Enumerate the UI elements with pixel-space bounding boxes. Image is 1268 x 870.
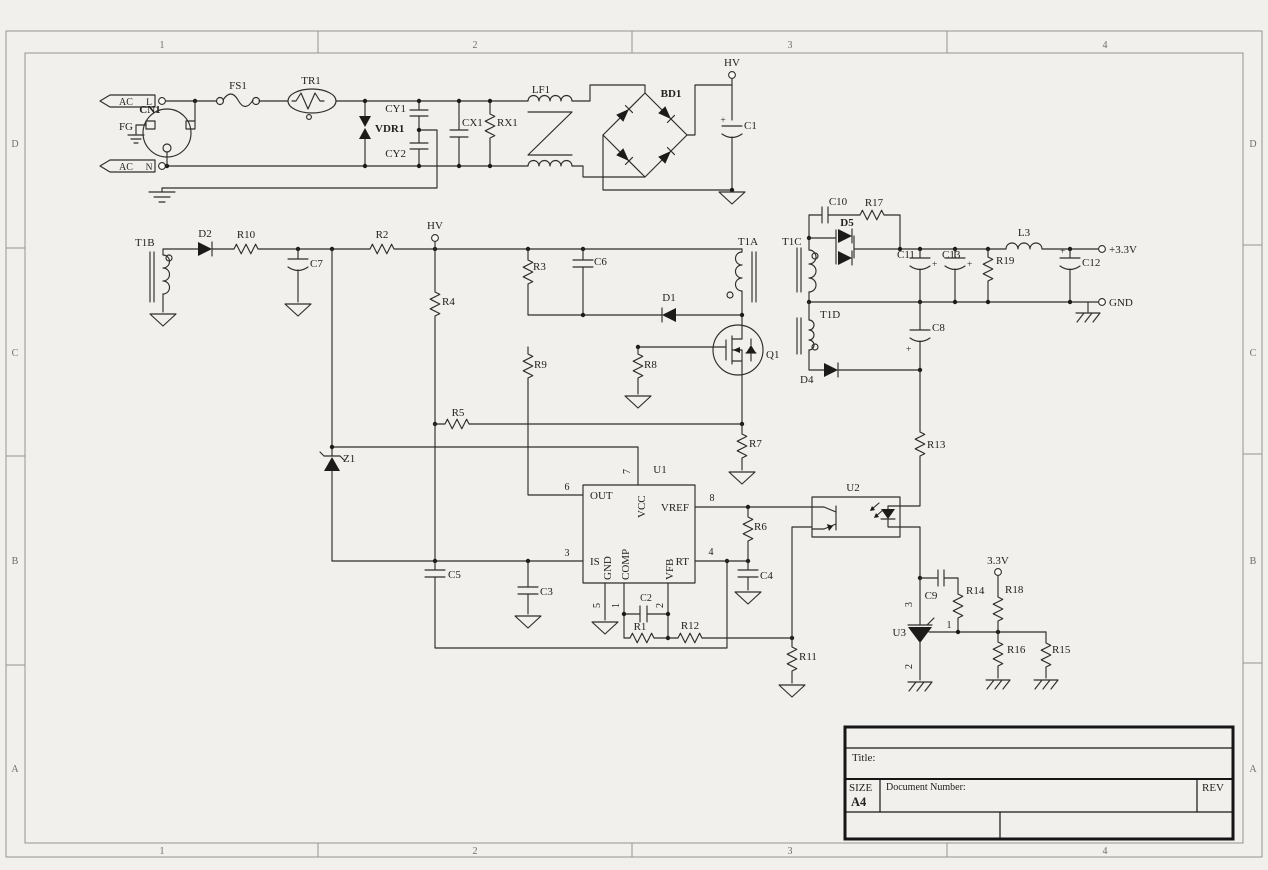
resistor-r12: R12	[668, 620, 794, 643]
fs1-label: FS1	[229, 80, 247, 92]
hv-top-label: HV	[724, 57, 740, 69]
d1-label: D1	[662, 292, 675, 304]
hv-mid-label: HV	[427, 220, 443, 232]
u1-pin-vfb-label: VFB	[664, 559, 676, 580]
c8-label: C8	[932, 322, 945, 334]
u3-pin3-number: 3	[904, 602, 915, 607]
u1-pin2-number: 2	[655, 603, 666, 608]
ac-line-flag-label: AC	[119, 97, 133, 108]
capacitor-c12: + C12	[1060, 247, 1100, 302]
resistor-r19: R19	[983, 249, 1015, 302]
u1-pin1-number: 1	[611, 603, 622, 608]
r19-label: R19	[996, 255, 1015, 267]
u1-pin-rt-label: RT	[676, 556, 690, 568]
y-capacitors: CY1 CY2	[149, 99, 437, 202]
capacitor-c5: C5	[425, 559, 729, 648]
zone-row-d-left: D	[11, 139, 18, 150]
t1d-label: T1D	[820, 309, 840, 321]
u1-label: U1	[653, 464, 666, 476]
resistor-r4: R4	[430, 249, 455, 424]
resistor-r5: R5	[433, 407, 744, 429]
resistor-r7: R7	[729, 424, 762, 484]
fg-label: FG	[119, 121, 133, 133]
r17-label: R17	[865, 197, 884, 209]
mosfet-q1: Q1	[638, 325, 779, 424]
r15-label: R15	[1052, 644, 1071, 656]
c4-label: C4	[760, 570, 773, 582]
lf1-label: LF1	[532, 84, 550, 96]
resistor-r16: R16	[986, 632, 1026, 689]
resistor-r3: R3	[523, 249, 546, 315]
c11-label: C11	[897, 249, 915, 261]
t1a-label: T1A	[738, 236, 758, 248]
inductor-l3: L3	[1006, 227, 1042, 249]
optocoupler-section: U2	[812, 482, 900, 537]
r9-label: R9	[534, 359, 547, 371]
fuse-fs1: FS1	[217, 80, 289, 107]
zone-col-1-top: 1	[160, 40, 165, 51]
common-mode-choke-lf1: LF1	[528, 84, 572, 166]
resistor-rx1: RX1	[485, 99, 518, 168]
c12-polarity: +	[1060, 247, 1065, 257]
signal-ground-icon	[908, 682, 932, 691]
r10-label: R10	[237, 229, 256, 241]
bd1-label: BD1	[661, 88, 682, 100]
u1-pin5-number: 5	[592, 603, 603, 608]
resistor-r9: R9	[523, 347, 583, 495]
u1-pin-out-label: OUT	[590, 490, 613, 502]
zone-row-d-right: D	[1249, 139, 1256, 150]
u1-pin4-number: 4	[709, 547, 714, 558]
zone-row-c-right: C	[1250, 348, 1257, 359]
r14-label: R14	[966, 585, 985, 597]
schematic-canvas: 1 2 3 4 1 2 3 4 D C B A D C B A Title: S…	[0, 0, 1268, 870]
schematic-sheet: 1 2 3 4 1 2 3 4 D C B A D C B A Title: S…	[0, 0, 1268, 870]
r7-label: R7	[749, 438, 762, 450]
u3-pin1-number: 1	[947, 620, 952, 631]
resistor-r18: 3.3V R18	[987, 555, 1024, 632]
u3-pin2-number: 2	[904, 664, 915, 669]
ac-neutral-terminal	[159, 163, 166, 170]
thermistor-tr1: TR1	[288, 75, 528, 119]
aux-supply-row: T1B D2 R10 C7 R2 HV R4	[135, 220, 742, 424]
connector-cn1: FG CN1	[119, 101, 195, 166]
zone-col-1-bottom: 1	[160, 846, 165, 857]
capacitor-c11: C11 +	[897, 249, 937, 302]
r18-label: R18	[1005, 584, 1024, 596]
r2-label: R2	[376, 229, 389, 241]
zone-row-b-left: B	[12, 556, 19, 567]
r6-label: R6	[754, 521, 767, 533]
ground-icon	[729, 472, 755, 484]
c7-label: C7	[310, 258, 323, 270]
r16-label: R16	[1007, 644, 1026, 656]
hv-mid-terminal	[432, 235, 439, 242]
signal-ground-icon	[1076, 313, 1100, 322]
u1-pin-vref-label: VREF	[661, 502, 689, 514]
zone-row-c-left: C	[12, 348, 19, 359]
c1-polarity: +	[720, 116, 725, 126]
u2-label: U2	[846, 482, 859, 494]
z1-label: Z1	[343, 453, 355, 465]
d5-label: D5	[840, 217, 854, 229]
zener-z1: Z1	[320, 452, 355, 561]
ground-icon	[735, 592, 761, 604]
transformer-t1d: T1D D4	[797, 302, 920, 386]
zone-row-a-right: A	[1249, 764, 1257, 775]
l3-label: L3	[1018, 227, 1031, 239]
rectifier-section: BD1 HV + C1	[572, 57, 757, 204]
u1-pin-vcc-label: VCC	[636, 495, 648, 518]
ground-icon	[719, 192, 745, 204]
c5-label: C5	[448, 569, 461, 581]
c1-label: C1	[744, 120, 757, 132]
capacitor-c7: C7	[285, 249, 323, 316]
u1-pin6-number: 6	[565, 482, 570, 493]
ac-neutral-pin-label: N	[146, 163, 153, 173]
c3-label: C3	[540, 586, 553, 598]
r4-label: R4	[442, 296, 455, 308]
u1-pin8-number: 8	[710, 493, 715, 504]
ground-icon	[515, 616, 541, 628]
zone-col-2-top: 2	[473, 40, 478, 51]
cn1-label: CN1	[139, 104, 160, 116]
ground-icon	[779, 685, 805, 697]
title-label: Title:	[852, 752, 875, 764]
capacitor-c8: C8 +	[906, 302, 945, 372]
rev-label: REV	[1202, 782, 1224, 794]
v33-terminal	[995, 569, 1002, 576]
transformer-t1c: T1C	[782, 215, 818, 302]
output-3v3-terminal	[1099, 246, 1106, 253]
u1-pin-comp-label: COMP	[620, 549, 632, 580]
q1-label: Q1	[766, 349, 779, 361]
cx1-label: CX1	[462, 117, 483, 129]
ground-icon	[150, 314, 176, 326]
resistor-r13: R13	[900, 370, 946, 506]
zone-col-3-top: 3	[788, 40, 793, 51]
resistor-r15: R15	[1034, 632, 1071, 689]
cy1-label: CY1	[385, 103, 406, 115]
capacitor-c4: C4	[735, 561, 773, 604]
u3-label: U3	[893, 627, 907, 639]
t1b-label: T1B	[135, 237, 155, 249]
v33-label: 3.3V	[987, 555, 1009, 567]
r1-label: R1	[634, 621, 647, 633]
signal-ground-icon	[1034, 680, 1058, 689]
signal-ground-icon	[986, 680, 1010, 689]
zone-col-4-top: 4	[1103, 40, 1108, 51]
tr1-label: TR1	[301, 75, 321, 87]
secondary-section: T1C C10 R17 D5 C11 +	[782, 196, 1137, 506]
size-value: A4	[851, 795, 867, 809]
ground-icon	[625, 396, 651, 408]
sheet-frame: 1 2 3 4 1 2 3 4 D C B A D C B A	[6, 31, 1262, 857]
primary-switch-section: R3 C6 D1 T1A Q1	[433, 236, 780, 495]
c13-polarity: +	[967, 260, 972, 270]
size-label: SIZE	[849, 782, 873, 794]
zone-row-b-right: B	[1250, 556, 1257, 567]
resistor-r1: R1	[624, 621, 670, 643]
ac-neutral-flag-label: AC	[119, 162, 133, 173]
r8-label: R8	[644, 359, 657, 371]
rx1-label: RX1	[497, 117, 518, 129]
capacitor-c6: C6	[573, 249, 607, 315]
c6-label: C6	[594, 256, 607, 268]
fg-earth-icon	[128, 135, 144, 143]
cy2-label: CY2	[385, 148, 406, 160]
zone-col-4-bottom: 4	[1103, 846, 1108, 857]
shunt-regulator-u3: U3 3 2 1	[893, 602, 952, 691]
u1-pin-is-label: IS	[590, 556, 600, 568]
resistor-r6: R6	[743, 507, 767, 561]
c2-label: C2	[640, 593, 652, 604]
c9-label: C9	[925, 590, 938, 602]
r3-label: R3	[533, 261, 546, 273]
c13-label: C13	[942, 249, 961, 261]
capacitor-c13: C13 +	[942, 249, 972, 302]
u1-pin-gnd-label: GND	[602, 556, 614, 580]
resistor-r11: R11	[779, 638, 817, 697]
doc-number-label: Document Number:	[886, 782, 966, 793]
ac-input-section: AC L AC N FG CN1 FS1 T	[100, 75, 572, 202]
c8-polarity: +	[906, 345, 911, 355]
output-gnd-label: GND	[1109, 297, 1133, 309]
output-3v3-label: +3.3V	[1109, 244, 1137, 256]
c11-polarity: +	[932, 260, 937, 270]
ground-icon	[592, 622, 618, 634]
r5-label: R5	[452, 407, 465, 419]
u1-pin7-number: 7	[622, 469, 633, 474]
zone-col-3-bottom: 3	[788, 846, 793, 857]
feedback-section: U3 3 2 1 C9 R14 3.3V R18 R16	[893, 527, 1071, 691]
title-block: Title: SIZE A4 Document Number: REV	[845, 727, 1233, 839]
ground-icon	[285, 304, 311, 316]
capacitor-c3: C3	[515, 561, 553, 628]
d2-label: D2	[198, 228, 211, 240]
r12-label: R12	[681, 620, 699, 632]
vdr1-label: VDR1	[375, 123, 404, 135]
u1-pin3-number: 3	[565, 548, 570, 559]
chassis-earth-icon	[149, 192, 175, 202]
x-capacitor-cx1: CX1	[450, 99, 483, 168]
zone-row-a-left: A	[11, 764, 19, 775]
zone-col-2-bottom: 2	[473, 846, 478, 857]
output-gnd-terminal	[1099, 299, 1106, 306]
r11-label: R11	[799, 651, 817, 663]
resistor-r8: R8	[625, 345, 657, 408]
d4-label: D4	[800, 374, 814, 386]
t1c-label: T1C	[782, 236, 802, 248]
c10-label: C10	[829, 196, 848, 208]
hv-terminal	[729, 72, 736, 79]
c12-label: C12	[1082, 257, 1100, 269]
r13-label: R13	[927, 439, 946, 451]
